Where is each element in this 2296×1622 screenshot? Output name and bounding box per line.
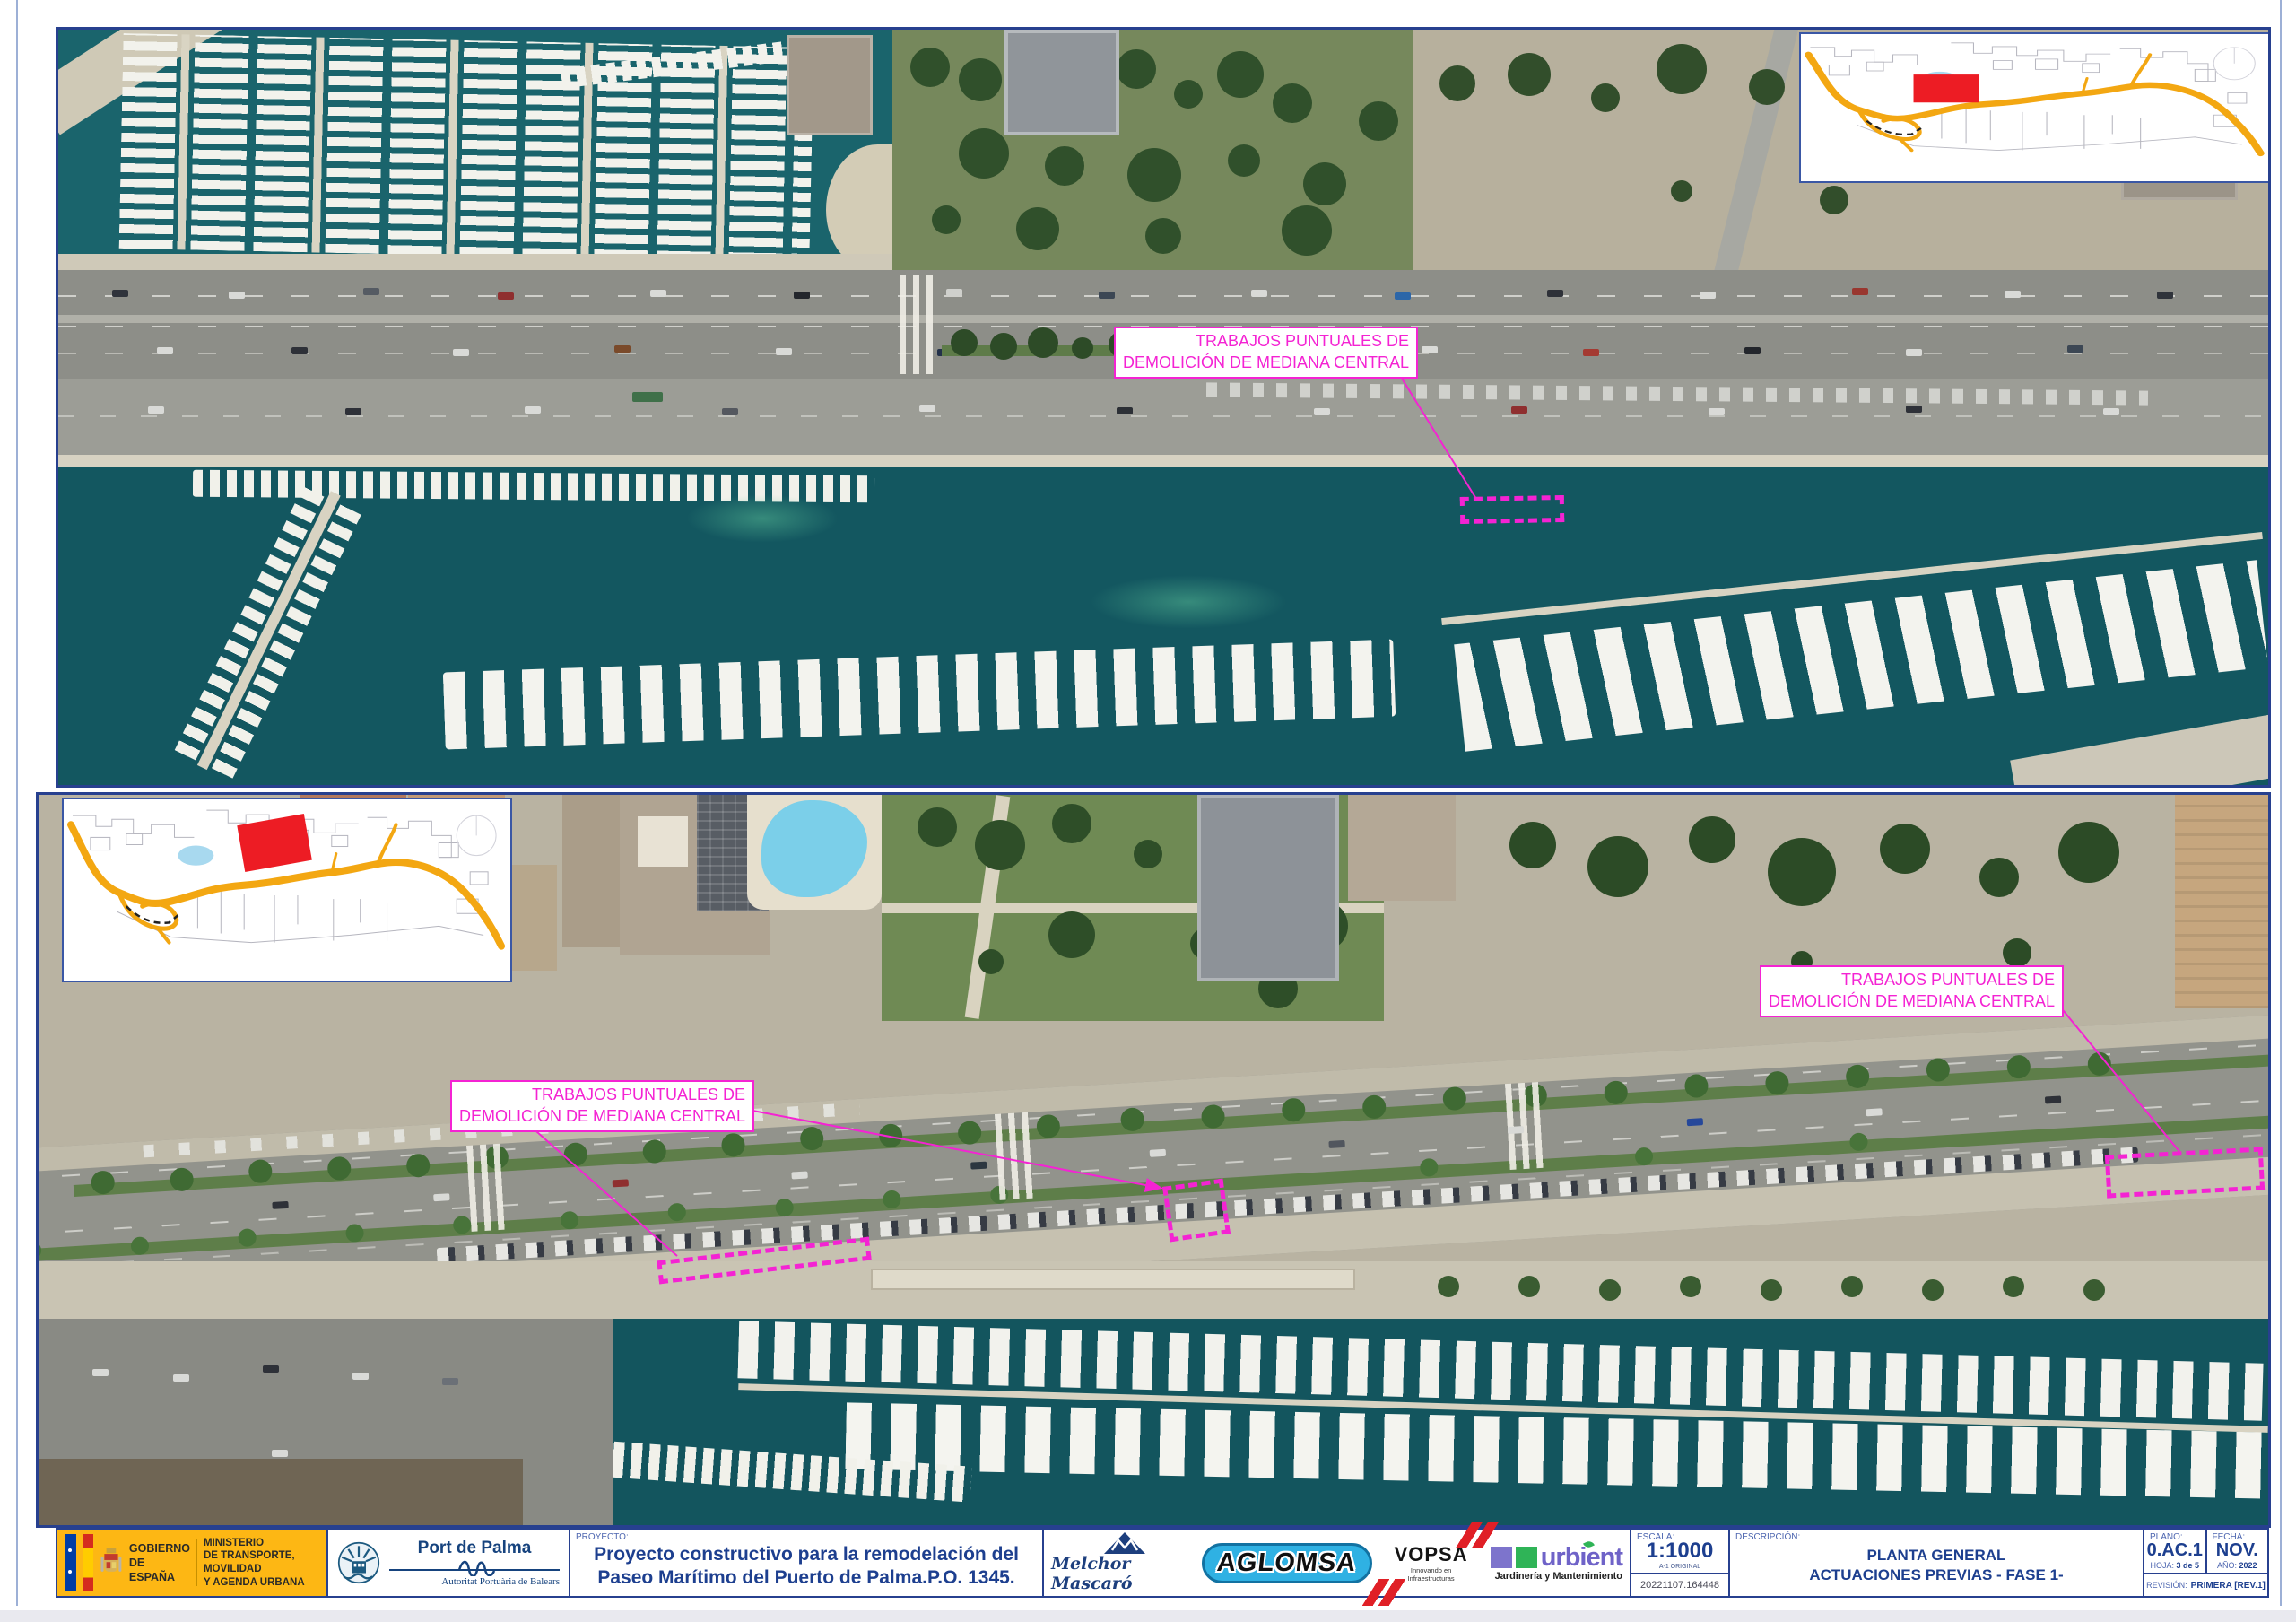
gobierno-line: GOBIERNO (129, 1541, 190, 1556)
marina-water-lower (58, 467, 2268, 785)
crosswalk (900, 275, 939, 374)
proyecto-label: PROYECTO: (576, 1532, 629, 1542)
courtyard (638, 816, 688, 867)
port-de-palma-name: Port de Palma (418, 1539, 532, 1558)
street-trees (1438, 1276, 1459, 1297)
urbient-name: urbient (1541, 1545, 1622, 1571)
lake (178, 846, 213, 866)
cars (272, 1201, 288, 1209)
building (1197, 795, 1339, 981)
tree-cluster (1509, 822, 1556, 868)
contractors-block: Melchor Mascaró AGLOMSA VOPSA Innovando … (1042, 1530, 1630, 1596)
hoja-label: HOJA: (2150, 1561, 2174, 1570)
street-trees (951, 329, 978, 356)
building (1004, 30, 1119, 135)
plano-label: PLANO: (2150, 1532, 2183, 1542)
crosswalk (466, 1143, 509, 1231)
revision-value: PRIMERA [REV.1] (2191, 1581, 2266, 1591)
sheet-footer-strip (0, 1610, 2296, 1622)
divider (196, 1539, 197, 1586)
ministerio-text: MINISTERIO DE TRANSPORTE, MOVILIDAD Y AG… (204, 1537, 319, 1590)
vopsa-logo: VOPSA Innovando en Infraestructuras (1376, 1543, 1487, 1583)
descripcion-label: DESCRIPCIÓN: (1735, 1532, 1800, 1542)
bus (632, 392, 663, 402)
cars (112, 290, 128, 297)
yacht-row (443, 640, 1396, 750)
scale-note: A-1 ORIGINAL (1659, 1564, 1700, 1570)
plano-cell: PLANO: 0.AC.1 HOJA: 3 de 5 (2144, 1530, 2207, 1573)
signature-flourish-icon (389, 1558, 560, 1576)
lower-left-road (39, 1319, 613, 1525)
apb-name: Autoritat Portuària de Balears (441, 1576, 560, 1587)
annotation-line: DEMOLICIÓN DE MEDIANA CENTRAL (1769, 991, 2055, 1013)
yacht-row (1454, 560, 2268, 751)
plan-sheet: TRABAJOS PUNTUALES DE DEMOLICIÓN DE MEDI… (0, 0, 2296, 1622)
tree-cluster (918, 807, 957, 847)
locator-red-marker (237, 814, 312, 872)
diagonal-pier (141, 467, 379, 788)
aglomsa-logo: AGLOMSA (1202, 1543, 1371, 1583)
cars (92, 1369, 109, 1376)
eu-flag-bar-icon (65, 1534, 76, 1591)
urbient-green-square-icon (1516, 1547, 1537, 1568)
sheet-frame-left (16, 0, 18, 1606)
apb-lighthouse-icon (337, 1539, 380, 1587)
lane-markings (58, 295, 2268, 297)
building (2175, 795, 2268, 1008)
crosswalk (995, 1112, 1038, 1200)
shallow-water (1090, 575, 1287, 629)
ano-label: AÑO: (2217, 1561, 2237, 1570)
locator-map-bottom (62, 798, 512, 982)
quay-corner (2010, 713, 2271, 788)
plano-fecha-block: PLANO: 0.AC.1 HOJA: 3 de 5 FECHA: NOV. A… (2143, 1530, 2267, 1596)
ministerio-line: DE TRANSPORTE, MOVILIDAD (204, 1549, 319, 1575)
annotation-label-3: TRABAJOS PUNTUALES DE DEMOLICIÓN DE MEDI… (1760, 965, 2064, 1017)
locator-red-marker (1914, 74, 1979, 102)
revision-cell: REVISIÓN: PRIMERA [REV.1] (2144, 1573, 2267, 1596)
building (39, 1459, 523, 1525)
tree-cluster (910, 48, 950, 87)
title-block: GOBIERNO DE ESPAÑA MINISTERIO DE TRANSPO… (56, 1528, 2269, 1598)
building (1348, 795, 1456, 901)
park-land (892, 30, 1413, 270)
sheet-title-line: ACTUACIONES PREVIAS - FASE 1- (1809, 1565, 2063, 1585)
ministerio-line: Y AGENDA URBANA (204, 1576, 319, 1590)
ano-line: AÑO: 2022 (2217, 1561, 2257, 1570)
building (787, 35, 873, 135)
gobierno-espana-block: GOBIERNO DE ESPAÑA MINISTERIO DE TRANSPO… (57, 1530, 326, 1596)
escala-block: ESCALA: 1:1000 A-1 ORIGINAL 20221107.164… (1630, 1530, 1728, 1596)
sheet-number: 0.AC.1 (2147, 1541, 2203, 1559)
annotation-line: DEMOLICIÓN DE MEDIANA CENTRAL (1123, 353, 1409, 374)
pontoon-dock (197, 491, 341, 770)
annotation-label-2: TRABAJOS PUNTUALES DE DEMOLICIÓN DE MEDI… (450, 1080, 754, 1132)
annotation-line: DEMOLICIÓN DE MEDIANA CENTRAL (459, 1106, 745, 1128)
demolition-marker-4 (2105, 1147, 2265, 1198)
aerial-panel-bottom (36, 792, 2271, 1528)
fecha-value: NOV. (2216, 1541, 2258, 1559)
proyecto-title-line: Paseo Marítimo del Puerto de Palma.P.O. … (597, 1566, 1014, 1590)
crosswalk (1505, 1082, 1548, 1170)
ministerio-line: MINISTERIO (204, 1537, 319, 1550)
hoja-value: 3 de 5 (2177, 1561, 2200, 1570)
port-de-palma-block: Port de Palma Autoritat Portuària de Bal… (326, 1530, 569, 1596)
mm-triangle-icon (1104, 1532, 1145, 1554)
annotation-line: TRABAJOS PUNTUALES DE (459, 1085, 745, 1106)
file-number: 20221107.164448 (1631, 1573, 1728, 1596)
aglomsa-name: AGLOMSA (1216, 1548, 1359, 1578)
parked-cars (1206, 382, 2148, 405)
locator-map-graphic (64, 799, 510, 981)
aerial-panel-top (56, 27, 2271, 788)
quay-road (58, 379, 2268, 455)
ano-value: 2022 (2239, 1561, 2257, 1570)
vopsa-stripes-icon (1361, 1579, 1409, 1606)
locator-map-top (1799, 32, 2271, 183)
yacht-row (845, 1402, 2268, 1498)
scale-value: 1:1000 (1647, 1540, 1714, 1562)
promenade (39, 1261, 2268, 1319)
lane-markings (58, 415, 2268, 417)
annotation-line: TRABAJOS PUNTUALES DE (1123, 331, 1409, 353)
demolition-marker-3 (1162, 1179, 1231, 1243)
gobierno-text: GOBIERNO DE ESPAÑA (129, 1541, 190, 1585)
melchor-mascaro-logo: Melchor Mascaró (1051, 1532, 1198, 1593)
spain-coat-of-arms-icon (100, 1542, 123, 1583)
annotation-label-1: TRABAJOS PUNTUALES DE DEMOLICIÓN DE MEDI… (1114, 327, 1418, 379)
descripcion-block: DESCRIPCIÓN: PLANTA GENERAL ACTUACIONES … (1728, 1530, 2143, 1596)
revision-label: REVISIÓN: (2146, 1581, 2187, 1590)
road-median (58, 315, 2268, 323)
annotation-line: TRABAJOS PUNTUALES DE (1769, 970, 2055, 991)
sidewalk (36, 1008, 2271, 1175)
tree-cluster (1439, 65, 1475, 101)
melchor-mascaro-name: Melchor Mascaró (1051, 1554, 1198, 1593)
spain-flag-bar-icon (83, 1534, 93, 1591)
quay-promenade (58, 254, 912, 272)
proyecto-block: PROYECTO: Proyecto constructivo para la … (569, 1530, 1042, 1596)
quay-edge (58, 455, 2268, 467)
fecha-label: FECHA: (2213, 1532, 2246, 1542)
escala-label: ESCALA: (1637, 1532, 1674, 1542)
demolition-marker-1 (1460, 495, 1565, 524)
locator-map-graphic (1801, 34, 2270, 181)
urbient-logo: urbient Jardinería y Mantenimiento (1491, 1545, 1622, 1582)
urbient-purple-square-icon (1491, 1547, 1512, 1568)
gobierno-line: DE ESPAÑA (129, 1556, 190, 1585)
sheet-title-line: PLANTA GENERAL (1867, 1546, 2006, 1565)
quay-building (871, 1269, 1355, 1290)
fecha-cell: FECHA: NOV. AÑO: 2022 (2207, 1530, 2268, 1573)
sheet-frame-right (2280, 0, 2282, 1606)
shallow-water (686, 494, 839, 543)
proyecto-title-line: Proyecto constructivo para la remodelaci… (594, 1543, 1019, 1566)
cars (148, 406, 164, 414)
urbient-tagline: Jardinería y Mantenimiento (1495, 1571, 1622, 1582)
cars (157, 347, 173, 354)
hoja-line: HOJA: 3 de 5 (2150, 1561, 2199, 1570)
